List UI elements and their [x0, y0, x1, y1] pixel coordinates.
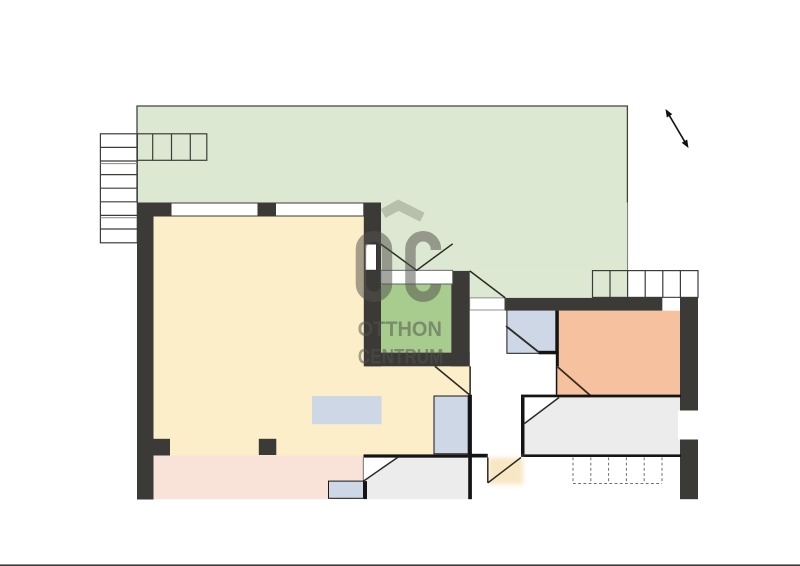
- svg-text:OTTHON: OTTHON: [358, 317, 442, 341]
- svg-text:CENTRUM: CENTRUM: [358, 345, 444, 369]
